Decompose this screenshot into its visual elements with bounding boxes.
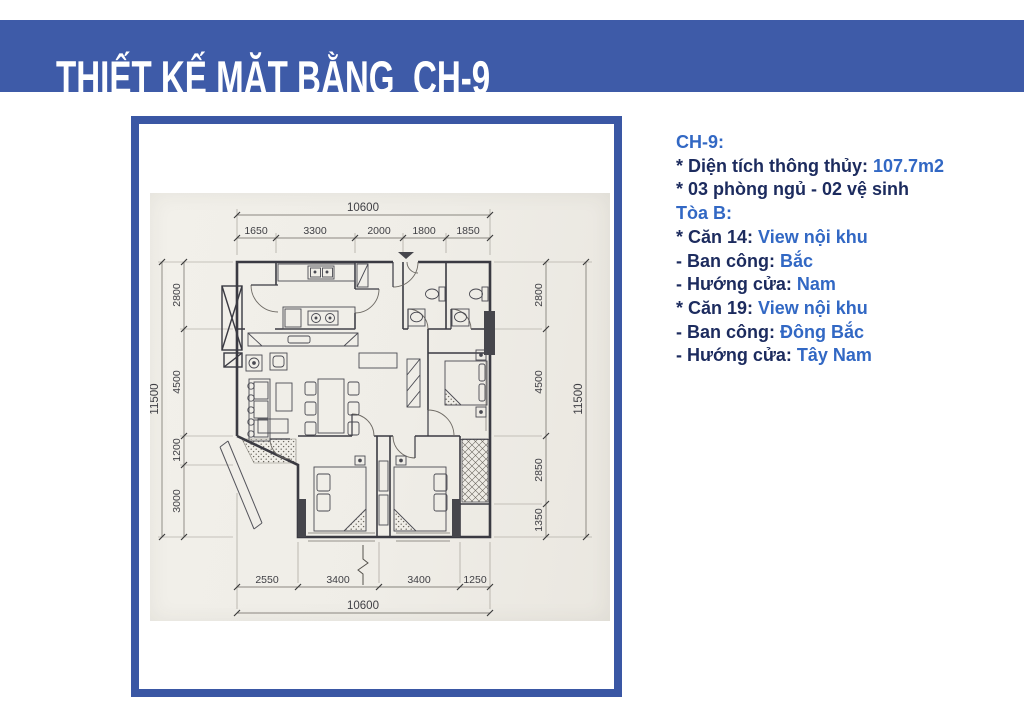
- info-label: * Căn 19:: [676, 298, 758, 318]
- dimension-labels: 10600 1650 3300 2000 1800 1850 2550 3400…: [150, 202, 585, 612]
- info-line: Tòa B:: [676, 202, 1006, 226]
- dim-label: 1200: [171, 438, 183, 462]
- dim-label: 11500: [573, 383, 585, 414]
- info-label: - Hướng cửa:: [676, 274, 797, 294]
- shaft: [484, 311, 495, 355]
- bar-counter: [248, 333, 358, 346]
- master-closet: [407, 359, 420, 407]
- info-line: * Căn 14: View nội khu: [676, 226, 1006, 250]
- info-line: * Căn 19: View nội khu: [676, 297, 1006, 321]
- bedroom1-bed: [314, 456, 366, 531]
- dim-label: 2550: [255, 574, 279, 586]
- info-heading: CH-9:: [676, 132, 724, 152]
- bedroom2-bed: [394, 456, 447, 531]
- unit-info-panel: CH-9: * Diện tích thông thủy: 107.7m2 * …: [676, 131, 1006, 368]
- page-title: THIẾT KẾ MẶT BẰNG CH-9: [56, 50, 490, 105]
- balcony-zones: [220, 286, 488, 529]
- pier: [452, 499, 460, 537]
- info-line: CH-9:: [676, 131, 1006, 155]
- dim-label: 2800: [171, 283, 183, 307]
- info-label: - Ban công:: [676, 251, 780, 271]
- divider-shelves: [379, 461, 388, 525]
- extension-lines: [158, 209, 592, 609]
- info-line: * Diện tích thông thủy: 107.7m2: [676, 155, 1006, 179]
- info-line: - Hướng cửa: Nam: [676, 273, 1006, 297]
- ac-ledge: [222, 286, 242, 367]
- info-line: - Hướng cửa: Tây Nam: [676, 344, 1006, 368]
- pier: [298, 499, 306, 537]
- master-bed: [445, 350, 487, 417]
- info-label: * Diện tích thông thủy:: [676, 156, 873, 176]
- dim-label: 10600: [347, 202, 379, 214]
- furniture: [246, 264, 488, 531]
- floor-plan-photo: 10600 1650 3300 2000 1800 1850 2550 3400…: [150, 193, 610, 621]
- dim-label: 4500: [171, 370, 183, 394]
- header-band: THIẾT KẾ MẶT BẰNG CH-9: [0, 20, 1024, 92]
- dim-label: 1650: [244, 225, 268, 237]
- washing-machine: [246, 355, 262, 371]
- kitchen-counters: [278, 264, 355, 329]
- door-leaves: [251, 262, 451, 458]
- dim-label: 1800: [412, 225, 436, 237]
- info-value: Nam: [797, 274, 836, 294]
- dimension-ticks: [159, 212, 589, 616]
- dim-label: 3400: [326, 574, 350, 586]
- info-value: Bắc: [780, 251, 813, 271]
- info-value: Tây Nam: [797, 345, 872, 365]
- dimension-chains: [162, 215, 586, 613]
- sink: [408, 309, 425, 326]
- info-value: View nội khu: [758, 298, 868, 318]
- dim-label: 3300: [303, 225, 327, 237]
- hall-closet: [357, 264, 397, 368]
- floor-plan-box: 10600 1650 3300 2000 1800 1850 2550 3400…: [131, 116, 622, 697]
- dim-label: 1250: [463, 574, 487, 586]
- dim-label: 11500: [150, 383, 161, 414]
- crosshatch-balcony: [462, 439, 488, 502]
- entry-arrow: [398, 252, 414, 259]
- info-label: - Hướng cửa:: [676, 345, 797, 365]
- info-value: View nội khu: [758, 227, 868, 247]
- floor-plan-drawing: 10600 1650 3300 2000 1800 1850 2550 3400…: [150, 193, 610, 621]
- toilet: [470, 287, 489, 301]
- info-label: * Căn 14:: [676, 227, 758, 247]
- coffee-table: [258, 419, 288, 433]
- toilet: [426, 287, 446, 301]
- info-heading: Tòa B:: [676, 203, 732, 223]
- dim-label: 3400: [407, 574, 431, 586]
- dim-label: 3000: [171, 489, 183, 513]
- info-value: 107.7m2: [873, 156, 944, 176]
- info-line: - Ban công: Đông Bắc: [676, 321, 1006, 345]
- dim-label: 2800: [533, 283, 545, 307]
- info-line: - Ban công: Bắc: [676, 250, 1006, 274]
- dining-set: [305, 379, 359, 435]
- info-line: * 03 phòng ngủ - 02 vệ sinh: [676, 178, 1006, 202]
- dim-label: 1350: [533, 508, 545, 532]
- dim-label: 10600: [347, 600, 379, 612]
- dim-label: 4500: [533, 370, 545, 394]
- dim-label: 2000: [367, 225, 391, 237]
- info-value: Đông Bắc: [780, 322, 864, 342]
- info-label: - Ban công:: [676, 322, 780, 342]
- info-label: * 03 phòng ngủ - 02 vệ sinh: [676, 179, 909, 199]
- armchair: [270, 353, 287, 370]
- dim-label: 1850: [456, 225, 480, 237]
- sofa: [248, 379, 292, 441]
- dim-label: 2850: [533, 458, 545, 482]
